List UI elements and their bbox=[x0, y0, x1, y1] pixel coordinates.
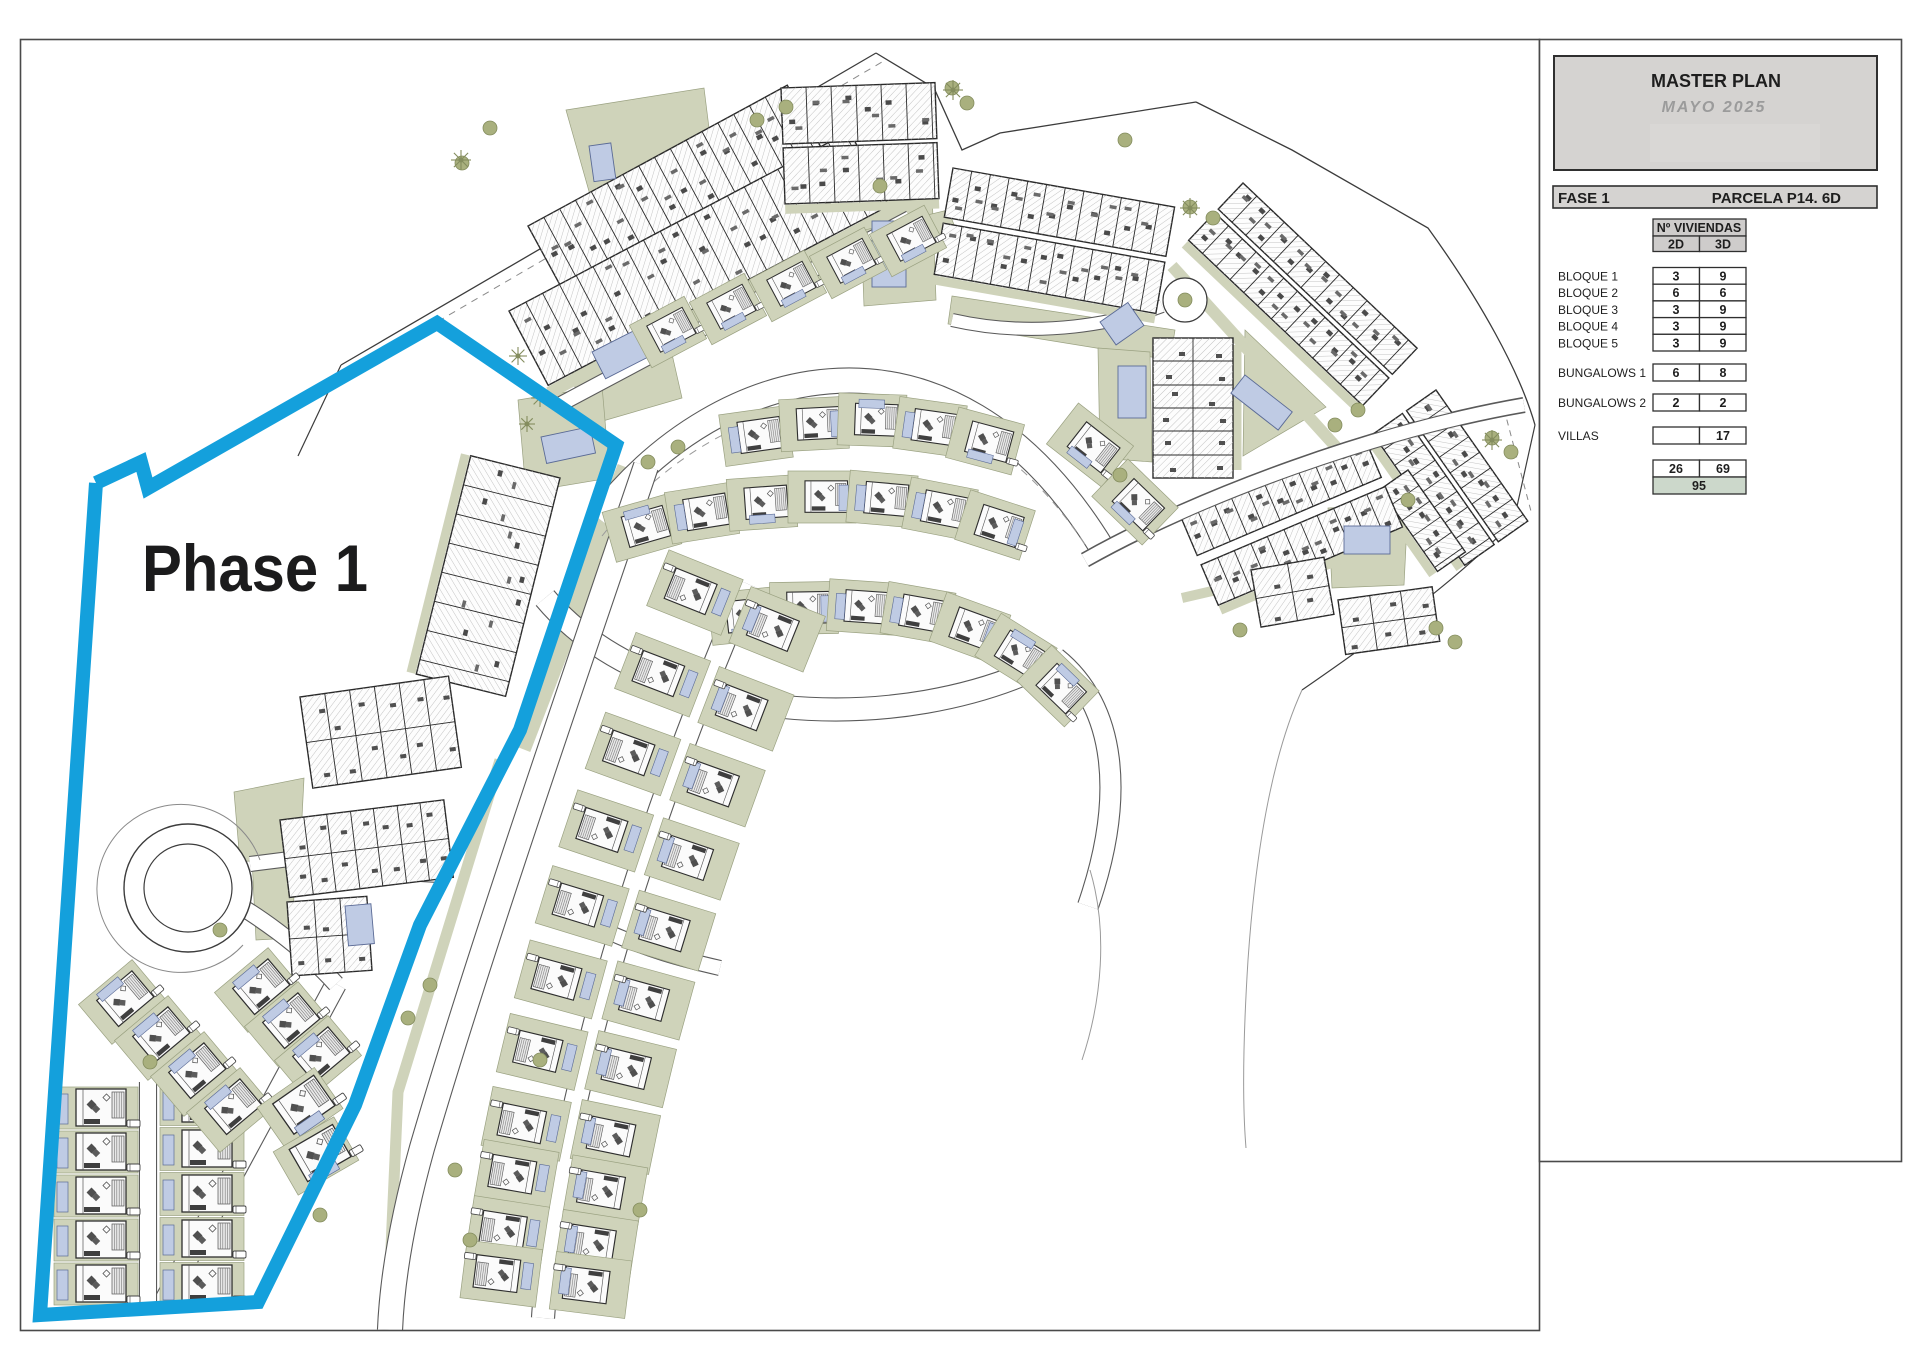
svg-text:8: 8 bbox=[1720, 366, 1727, 380]
svg-text:MAYO 2025: MAYO 2025 bbox=[1662, 99, 1767, 116]
svg-text:2D: 2D bbox=[1668, 238, 1684, 252]
svg-text:9: 9 bbox=[1720, 303, 1727, 317]
svg-text:9: 9 bbox=[1720, 320, 1727, 334]
svg-text:BUNGALOWS 1: BUNGALOWS 1 bbox=[1558, 366, 1646, 380]
svg-text:6: 6 bbox=[1720, 286, 1727, 300]
svg-text:6: 6 bbox=[1673, 286, 1680, 300]
svg-text:69: 69 bbox=[1716, 462, 1730, 476]
svg-text:3D: 3D bbox=[1715, 238, 1731, 252]
svg-text:VILLAS: VILLAS bbox=[1558, 429, 1599, 443]
svg-text:95: 95 bbox=[1692, 479, 1706, 493]
svg-text:2: 2 bbox=[1673, 396, 1680, 410]
svg-text:26: 26 bbox=[1669, 462, 1683, 476]
svg-text:BLOQUE 1: BLOQUE 1 bbox=[1558, 270, 1618, 284]
svg-text:2: 2 bbox=[1720, 396, 1727, 410]
svg-text:PARCELA P14. 6D: PARCELA P14. 6D bbox=[1712, 190, 1841, 207]
svg-text:BLOQUE 5: BLOQUE 5 bbox=[1558, 336, 1618, 350]
svg-text:9: 9 bbox=[1720, 270, 1727, 284]
svg-text:BLOQUE 3: BLOQUE 3 bbox=[1558, 303, 1618, 317]
svg-text:BLOQUE 2: BLOQUE 2 bbox=[1558, 286, 1618, 300]
svg-text:BLOQUE 4: BLOQUE 4 bbox=[1558, 320, 1618, 334]
svg-text:9: 9 bbox=[1720, 336, 1727, 350]
svg-text:6: 6 bbox=[1673, 366, 1680, 380]
svg-text:3: 3 bbox=[1673, 303, 1680, 317]
svg-text:17: 17 bbox=[1716, 429, 1730, 443]
svg-text:MASTER PLAN: MASTER PLAN bbox=[1651, 71, 1781, 91]
svg-text:Nº VIVIENDAS: Nº VIVIENDAS bbox=[1657, 221, 1741, 235]
svg-text:3: 3 bbox=[1673, 320, 1680, 334]
svg-text:FASE 1: FASE 1 bbox=[1558, 190, 1610, 207]
svg-text:3: 3 bbox=[1673, 336, 1680, 350]
svg-text:3: 3 bbox=[1673, 270, 1680, 284]
svg-text:BUNGALOWS 2: BUNGALOWS 2 bbox=[1558, 396, 1646, 410]
svg-text:Phase 1: Phase 1 bbox=[142, 531, 368, 605]
